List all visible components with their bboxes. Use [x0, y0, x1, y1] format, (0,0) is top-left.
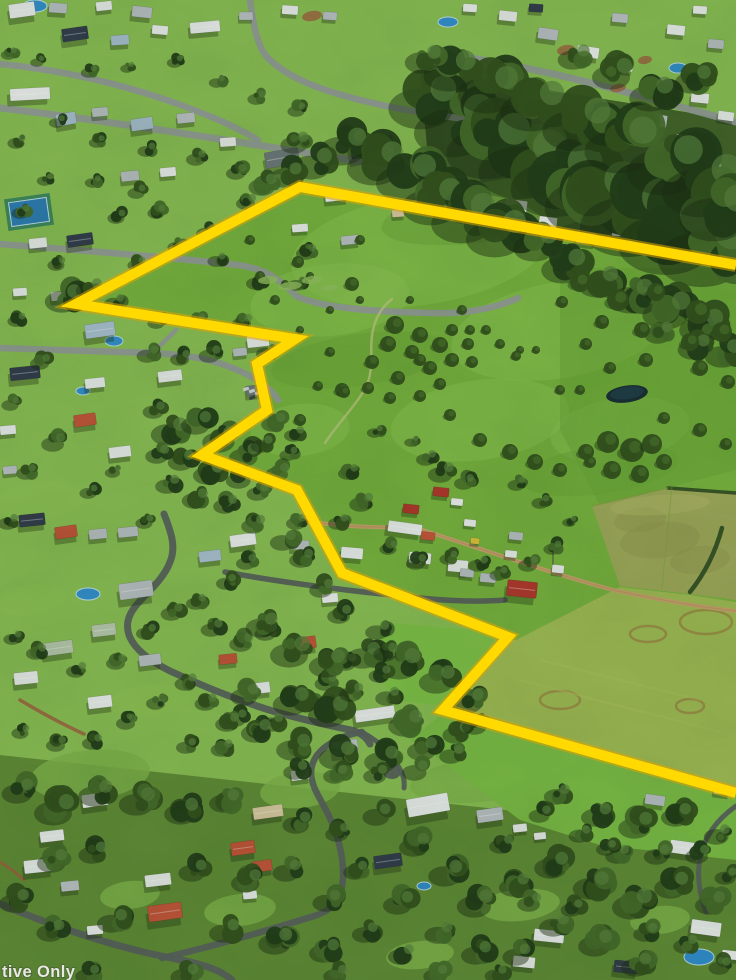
aerial-photo-canvas: tive Only — [0, 0, 736, 980]
watermark-text: tive Only — [2, 963, 76, 980]
aerial-photo: tive Only — [0, 0, 736, 980]
photo-grain-overlay — [0, 0, 736, 980]
